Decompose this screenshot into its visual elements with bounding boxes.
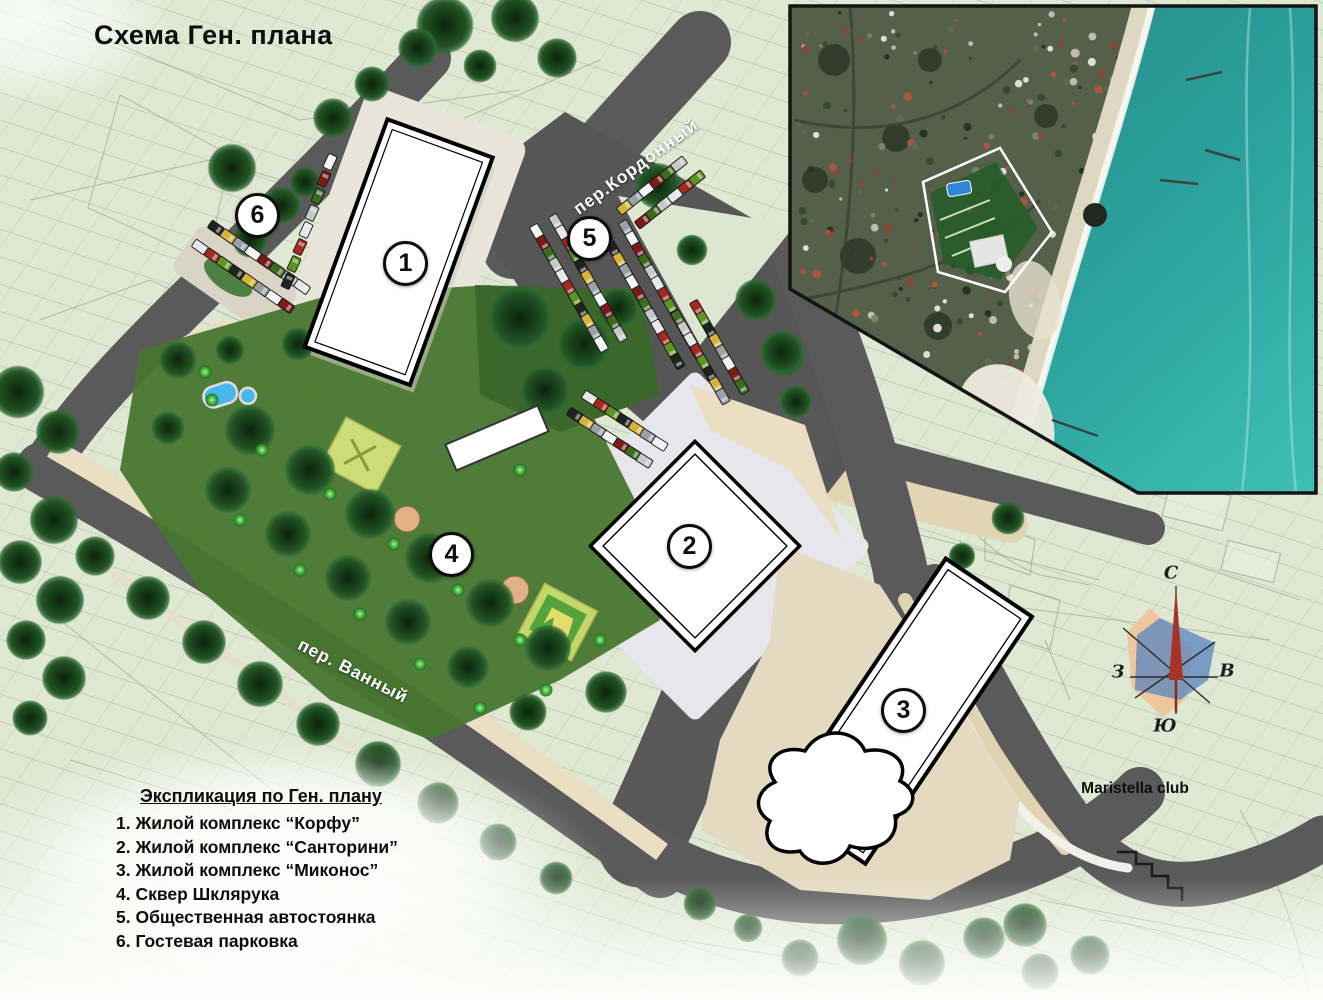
compass-letter-south: Ю [1153, 716, 1176, 737]
inset-roof-speckle [923, 351, 930, 358]
inset-roof-speckle [944, 49, 948, 53]
inset-roof-speckle [988, 134, 994, 140]
inset-roof-speckle [1089, 33, 1097, 41]
inset-roof-speckle [1047, 46, 1053, 52]
inset-roof-speckle [1104, 87, 1108, 91]
inset-roof-speckle [889, 11, 894, 16]
legend-item: 5. Общественная автостоянка [116, 906, 398, 930]
tree [509, 693, 547, 731]
inset-roof-speckle [852, 310, 860, 318]
page-title: Схема Ген. плана [94, 20, 333, 51]
inset-roof-speckle [812, 270, 821, 279]
marker-2: 2 [667, 524, 712, 569]
tree [42, 656, 87, 701]
inset-roof-speckle [891, 45, 895, 49]
tree [264, 510, 311, 557]
marker-3: 3 [881, 688, 926, 733]
tree [215, 335, 244, 364]
marker-1: 1 [383, 241, 428, 286]
inset-roof-speckle [834, 170, 840, 176]
inset-roof-speckle [989, 316, 997, 324]
inset-roof-speckle [919, 129, 927, 137]
bush [206, 394, 219, 407]
inset-roof-speckle [1023, 77, 1029, 83]
inset-roof-speckle [978, 332, 982, 336]
tree [182, 620, 227, 665]
inset-roof-speckle [805, 31, 810, 36]
inset-tree-cluster [818, 44, 850, 76]
tree [207, 143, 256, 192]
inset-roof-speckle [799, 207, 807, 215]
inset-roof-speckle [871, 315, 879, 323]
inset-roof-speckle [801, 130, 806, 135]
inset-roof-speckle [906, 278, 914, 286]
inset-roof-speckle [1078, 86, 1081, 89]
inset-roof-speckle [1009, 109, 1015, 115]
tree [324, 554, 371, 601]
inset-roof-speckle [1072, 102, 1075, 105]
inset-roof-speckle [800, 269, 806, 275]
tree [126, 576, 171, 621]
inset-roof-speckle [823, 102, 831, 110]
inset-roof-speckle [1028, 100, 1033, 105]
inset-roof-speckle [884, 54, 890, 60]
legend-item: 1. Жилой комплекс “Корфу” [116, 812, 398, 836]
tree [537, 38, 577, 78]
tree [519, 364, 571, 416]
tree [75, 536, 115, 576]
inset-roof-speckle [933, 324, 942, 333]
inset-roof-speckle [881, 264, 885, 268]
inset-roof-speckle [932, 282, 938, 288]
inset-roof-speckle [969, 313, 974, 318]
inset-roof-speckle [1006, 166, 1009, 169]
inset-roof-speckle [963, 123, 971, 131]
inset-roof-speckle [1038, 132, 1044, 138]
inset-roof-speckle [1058, 41, 1064, 47]
inset-roof-speckle [964, 137, 967, 140]
inset-roof-speckle [1063, 79, 1070, 86]
inset-roof-speckle [1051, 72, 1057, 78]
bush [414, 658, 427, 671]
tree [344, 488, 396, 540]
compass-letter-north: С [1164, 563, 1178, 584]
inset-roof-speckle [1069, 64, 1077, 72]
bush [388, 538, 401, 551]
inset-roof-speckle [1094, 85, 1103, 94]
inset-roof-speckle [874, 170, 879, 175]
inset-roof-speckle [871, 224, 879, 232]
inset-roof-speckle [934, 305, 940, 311]
inset-roof-speckle [1014, 354, 1019, 359]
inset-roof-speckle [891, 104, 896, 109]
tree [36, 410, 81, 455]
tree [447, 646, 490, 689]
inset-roof-speckle [903, 92, 912, 101]
inset-roof-speckle [829, 231, 835, 237]
inset-roof-speckle [1088, 58, 1096, 66]
inset-roof-speckle [941, 115, 946, 120]
inset-roof-speckle [990, 290, 994, 294]
inset-roof-speckle [968, 41, 973, 46]
inset-roof-speckle [803, 91, 807, 95]
inset-roof-speckle [807, 166, 814, 173]
inset-roof-speckle [962, 286, 970, 294]
inset-roof-speckle [1048, 11, 1054, 17]
inset-roof-speckle [964, 140, 967, 143]
tree [354, 66, 390, 102]
inset-roof-speckle [918, 212, 923, 217]
tree [204, 466, 251, 513]
inset-roof-speckle [858, 36, 863, 41]
inset-roof-speckle [800, 218, 807, 225]
legend-item: 3. Жилой комплекс “Миконос” [116, 859, 398, 883]
tree [676, 234, 707, 265]
inset-roof-speckle [881, 36, 887, 42]
inset-tree-cluster [802, 167, 828, 193]
inset-roof-speckle [997, 300, 1003, 306]
tree [313, 98, 353, 138]
inset-roof-speckle [895, 208, 898, 211]
inset-roof-speckle [803, 245, 809, 251]
inset-roof-speckle [905, 297, 910, 302]
tree [779, 385, 813, 419]
inset-roof-speckle [810, 219, 815, 224]
inset-tree-cluster [1034, 104, 1058, 128]
inset-tree-cluster [918, 48, 942, 72]
bush [514, 634, 527, 647]
bush [452, 584, 465, 597]
tree [585, 671, 628, 714]
inset-roof-speckle [985, 310, 992, 317]
area-label-maristella: Maristella club [1081, 780, 1189, 798]
tree [991, 501, 1025, 535]
inset-roof-speckle [1063, 18, 1067, 22]
inset-roof-speckle [1019, 191, 1024, 196]
marker-6: 6 [235, 193, 280, 238]
inset-roof-speckle [838, 23, 842, 27]
inset-roof-speckle [1038, 23, 1042, 27]
inset-roof-speckle [884, 224, 892, 232]
inset-roof-speckle [910, 142, 917, 149]
tree [465, 578, 514, 627]
inset-roof-speckle [1033, 45, 1040, 52]
inset-roof-speckle [1003, 86, 1011, 94]
legend-item: 2. Жилой комплекс “Санторини” [116, 836, 398, 860]
inset-roof-speckle [1110, 42, 1118, 50]
compass-letter-east: В [1219, 661, 1234, 682]
tree [6, 620, 46, 660]
bush [514, 464, 527, 477]
tree [760, 330, 805, 375]
inset-roof-speckle [891, 29, 895, 33]
bush [324, 488, 337, 501]
inset-tree-cluster [882, 124, 910, 152]
inset-roof-speckle [1038, 94, 1045, 101]
inset-roof-speckle [891, 179, 895, 183]
gazebo-1 [394, 506, 420, 532]
bush [354, 608, 367, 621]
inset-roof-speckle [933, 45, 937, 49]
inset-roof-speckle [1055, 150, 1063, 158]
inset-roof-speckle [914, 218, 919, 223]
inset-roof-speckle [998, 104, 1002, 108]
legend-item: 6. Гостевая парковка [116, 930, 398, 954]
inset-roof-speckle [892, 292, 898, 298]
bush [474, 702, 487, 715]
tree [524, 624, 571, 671]
bush [540, 684, 553, 697]
inset-roof-speckle [802, 45, 809, 52]
tree [486, 284, 553, 351]
bush [594, 634, 607, 647]
inset-roof-speckle [828, 180, 836, 188]
inset-roof-speckle [948, 26, 955, 33]
tree [12, 700, 48, 736]
inset-roof-speckle [854, 252, 857, 255]
inset-roof-speckle [867, 33, 872, 38]
inset-roof-speckle [843, 27, 850, 34]
inset-roof-speckle [1014, 349, 1019, 354]
inset-roof-speckle [857, 190, 861, 194]
inset-roof-speckle [899, 287, 903, 291]
site-plan-image: Схема Ген. плана 1 2 3 4 5 6 пер.Кордонн… [0, 0, 1323, 1000]
bush [256, 444, 269, 457]
inset-roof-speckle [1003, 37, 1006, 40]
legend-title: Экспликация по Ген. плану [140, 786, 398, 807]
tree [463, 49, 497, 83]
inset-roof-speckle [915, 243, 919, 247]
bush [294, 564, 307, 577]
inset-roof-speckle [813, 132, 819, 138]
inset-roof-speckle [926, 157, 934, 165]
legend-panel: Экспликация по Ген. плану 1. Жилой компл… [116, 786, 398, 953]
inset-roof-speckle [865, 37, 868, 40]
inset-roof-speckle [1010, 360, 1015, 365]
inset-roof-speckle [957, 318, 963, 324]
inset-roof-speckle [1097, 69, 1105, 77]
inset-roof-speckle [969, 57, 973, 61]
inset-roof-speckle [980, 73, 983, 76]
inset-roof-speckle [943, 299, 947, 303]
tree [151, 411, 185, 445]
marker-5: 5 [567, 216, 612, 261]
legend-item: 4. Сквер Шклярука [116, 883, 398, 907]
inset-roof-speckle [1070, 78, 1077, 85]
inset-roof-speckle [913, 51, 917, 55]
inset-roof-speckle [819, 44, 823, 48]
inset-roof-speckle [1062, 124, 1066, 128]
inset-roof-speckle [869, 257, 873, 261]
inset-roof-speckle [1034, 32, 1038, 36]
tree [35, 575, 84, 624]
inset-roof-speckle [1053, 205, 1058, 210]
tree [735, 279, 778, 322]
inset-roof-speckle [829, 163, 837, 171]
inset-roof-speckle [1041, 45, 1045, 49]
inset-roof-speckle [1071, 49, 1080, 58]
inset-roof-speckle [839, 197, 842, 200]
inset-roof-speckle [955, 19, 958, 22]
tree [384, 598, 431, 645]
inset-roof-speckle [929, 81, 932, 84]
inset-roof-speckle [984, 142, 991, 149]
inset-roof-speckle [885, 189, 888, 192]
inset-roof-speckle [878, 143, 885, 150]
tree [398, 28, 438, 68]
inset-roof-speckle [911, 204, 914, 207]
tree [159, 341, 197, 379]
marker-4: 4 [429, 532, 474, 577]
inset-roof-speckle [1015, 80, 1023, 88]
tree [236, 660, 283, 707]
compass-letter-west: З [1112, 662, 1125, 683]
inset-roof-speckle [838, 11, 842, 15]
inset-roof-speckle [860, 179, 866, 185]
inset-roof-speckle [884, 239, 888, 243]
inset-roof-speckle [896, 33, 901, 38]
bush [199, 366, 212, 379]
inset-roof-speckle [822, 41, 828, 47]
tree [29, 495, 78, 544]
bush [234, 514, 247, 527]
legend-list: 1. Жилой комплекс “Корфу” 2. Жилой компл… [116, 812, 398, 953]
inset-roof-speckle [871, 213, 876, 218]
inset-roof-speckle [844, 109, 848, 113]
